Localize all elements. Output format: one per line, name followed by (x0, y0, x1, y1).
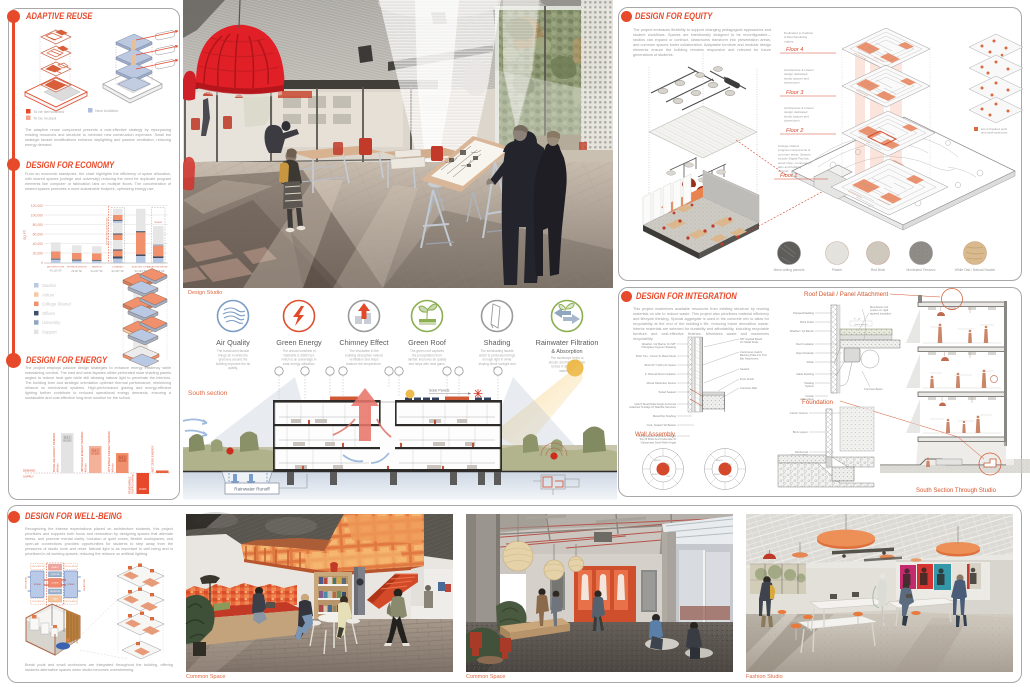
svg-text:AIR: AIR (728, 463, 732, 466)
svg-text:4" Mineral Wool Insulation: 4" Mineral Wool Insulation (645, 372, 677, 376)
svg-text:AIR: AIR (666, 463, 670, 466)
svg-text:Support: Support (42, 330, 58, 335)
svg-text:To be demolished: To be demolished (33, 109, 64, 114)
svg-text:Roof Insulation: Roof Insulation (796, 342, 814, 346)
svg-text:Green Energy: Green Energy (276, 338, 322, 347)
svg-text:Red Brick: Red Brick (871, 268, 886, 272)
svg-text:Rainwater Filtration: Rainwater Filtration (536, 338, 599, 347)
svg-text:INSUL: INSUL (714, 474, 721, 476)
svg-text:NET ZERO ENERGY: NET ZERO ENERGY (151, 445, 155, 472)
svg-text:CIRCULATION: CIRCULATION (83, 579, 86, 592)
svg-text:CIRCULATION: CIRCULATION (31, 565, 44, 568)
svg-text:Parapet/Cladding: Parapet/Cladding (793, 311, 814, 315)
svg-text:classrooms: classrooms (784, 81, 800, 85)
svg-text:White Oak / Natural Swatch: White Oak / Natural Swatch (955, 268, 996, 272)
svg-text:Monteland Terrazzo: Monteland Terrazzo (907, 268, 936, 272)
svg-text:20,000: 20,000 (33, 252, 43, 256)
svg-text:BRICK: BRICK (654, 460, 661, 462)
svg-text:Vapor Retarder: Vapor Retarder (796, 351, 814, 355)
svg-text:100,000: 100,000 (31, 214, 43, 218)
svg-text:New Addition: New Addition (95, 108, 118, 113)
svg-text:Floor 2: Floor 2 (786, 128, 804, 134)
svg-text:CIRCULATION: CIRCULATION (25, 576, 28, 589)
svg-text:LOUNGE: LOUNGE (51, 582, 59, 584)
svg-text:Attached To Edge Of Slab/Re St: Attached To Edge Of Slab/Re Structure (629, 405, 676, 409)
svg-text:Shading: Shading (484, 338, 511, 347)
svg-text:Weather / Air Barrier: Weather / Air Barrier (790, 329, 814, 333)
svg-text:Cable Flashing: Cable Flashing (796, 372, 814, 376)
svg-text:majors.: majors. (784, 39, 794, 43)
svg-text:Brick Finish: Brick Finish (800, 320, 814, 324)
svg-text:RESTROOM: RESTROOM (50, 591, 60, 593)
svg-text:Fiberglass Gypsum Sheating: Fiberglass Gypsum Sheating (641, 345, 676, 349)
svg-text:CIRCULATION: CIRCULATION (65, 565, 78, 568)
svg-text:Brick W/ T (Min) Air Space: Brick W/ T (Min) Air Space (645, 363, 677, 367)
svg-text:STAIR: STAIR (53, 598, 59, 601)
svg-text:120,000: 120,000 (31, 204, 43, 208)
svg-text:57,000: 57,000 (92, 453, 100, 456)
svg-text:EXISTING BUILDING TOTAL: EXISTING BUILDING TOTAL (106, 217, 109, 245)
svg-text:Plaster: Plaster (832, 268, 843, 272)
svg-text:Brick system: Brick system (793, 430, 809, 434)
svg-text:On Metal Studs: On Metal Studs (740, 340, 759, 344)
svg-text:kWh/yr: kWh/yr (111, 463, 115, 472)
svg-text:STUDIO: STUDIO (34, 584, 42, 586)
svg-text:kWh/yr: kWh/yr (84, 463, 88, 472)
svg-text:(panel gutter): (panel gutter) (854, 323, 867, 326)
svg-text:Floor 1: Floor 1 (780, 173, 797, 179)
svg-text:SUPPLY kWh/yr: SUPPLY kWh/yr (131, 474, 135, 494)
svg-text:To be reused: To be reused (33, 116, 56, 121)
svg-text:reused: reused (154, 220, 162, 224)
svg-text:BRICK: BRICK (716, 460, 723, 462)
svg-text:40,000: 40,000 (33, 242, 43, 246)
svg-text:Concrete Beam: Concrete Beam (864, 387, 883, 391)
svg-text:Offices: Offices (42, 311, 55, 316)
svg-text:Sealant: Sealant (740, 367, 749, 371)
svg-text:GYP: GYP (728, 476, 733, 478)
svg-text:Metal Drip Flashing: Metal Drip Flashing (653, 414, 677, 418)
svg-text:South Section Through Studio: South Section Through Studio (916, 488, 997, 494)
svg-text:Chimney Effect: Chimney Effect (339, 338, 388, 347)
svg-text:SUPPLY: SUPPLY (23, 475, 34, 479)
svg-text:Brick Ties - Screw To Metal St: Brick Ties - Screw To Metal Studs (636, 354, 677, 358)
svg-text:60,000: 60,000 (33, 233, 43, 237)
svg-text:Bar Attachment: Bar Attachment (740, 356, 759, 360)
svg-text:41,000: 41,000 (119, 460, 127, 463)
svg-text:INSUL: INSUL (652, 474, 659, 476)
svg-text:Interior Column: Interior Column (790, 411, 809, 415)
svg-text:Solar Panels: Solar Panels (429, 389, 450, 393)
svg-text:support.: support. (778, 169, 789, 173)
svg-text:Mortar Deflection Device: Mortar Deflection Device (647, 381, 677, 385)
svg-text:and small workrooms: and small workrooms (981, 131, 1008, 135)
svg-text:Atrium: Atrium (42, 292, 55, 297)
svg-text:Green Roof: Green Roof (408, 338, 447, 347)
svg-text:Galvanized Steel Relief Angle: Galvanized Steel Relief Angle (641, 440, 677, 444)
svg-text:Floor 3: Floor 3 (786, 90, 804, 96)
svg-text:Mesh ceiling pannels: Mesh ceiling pannels (774, 268, 805, 272)
svg-text:STUDIO: STUDIO (67, 584, 75, 586)
svg-text:Tooled Sealant: Tooled Sealant (658, 390, 676, 394)
svg-text:University: University (42, 320, 61, 325)
svg-text:classrooms: classrooms (784, 119, 800, 123)
svg-text:kWh/yr: kWh/yr (56, 463, 60, 472)
svg-text:College Shared: College Shared (42, 302, 72, 307)
svg-text:Wall Assembly: Wall Assembly (635, 431, 676, 438)
svg-text:Studios: Studios (42, 283, 56, 288)
svg-text:PRIVACY: PRIVACY (51, 566, 59, 569)
svg-text:7' - 0": 7' - 0" (854, 318, 860, 321)
svg-text:GYP: GYP (666, 476, 671, 478)
svg-text:Concrete Slab: Concrete Slab (740, 386, 758, 390)
svg-text:Roof Detail / Panel Attachment: Roof Detail / Panel Attachment (804, 291, 889, 298)
svg-text:45,000: 45,000 (139, 488, 147, 491)
svg-text:DEMAND: DEMAND (23, 469, 35, 473)
svg-text:Rainwater Runoff: Rainwater Runoff (234, 487, 270, 492)
svg-text:Cork, Sealant W/ Backer: Cork, Sealant W/ Backer (647, 423, 677, 427)
svg-text:84,140: 84,140 (64, 440, 72, 443)
svg-text:0: 0 (41, 261, 43, 265)
svg-text:CIRCULATION: CIRCULATION (65, 600, 78, 603)
svg-text:tapered insulation: tapered insulation (870, 311, 892, 315)
svg-text:QUIET RM: QUIET RM (51, 574, 60, 576)
svg-text:Air Quality: Air Quality (216, 338, 250, 347)
svg-text:80,000: 80,000 (33, 223, 43, 227)
svg-text:Floor 4: Floor 4 (786, 47, 803, 53)
svg-text:CIRCULATION: CIRCULATION (31, 600, 44, 603)
svg-text:Foundation: Foundation (802, 399, 834, 406)
svg-text:System: System (805, 384, 815, 388)
svg-text:Floor Finish: Floor Finish (740, 377, 755, 381)
svg-text:Rebar: Rebar (807, 360, 814, 364)
svg-text:SQ FT.: SQ FT. (23, 229, 27, 240)
